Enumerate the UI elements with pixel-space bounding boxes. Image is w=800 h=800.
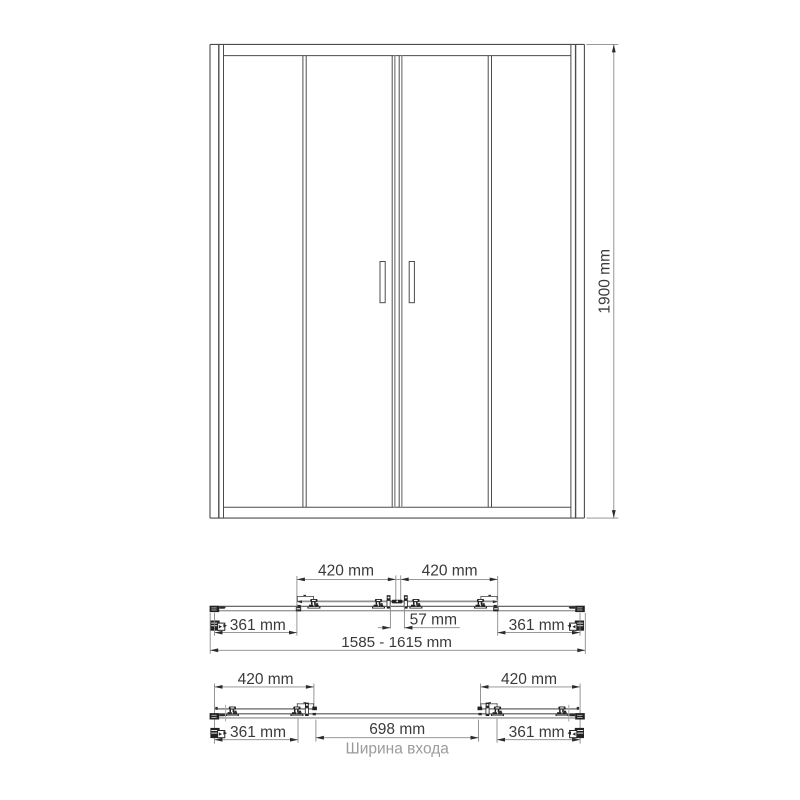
svg-text:420 mm: 420 mm	[318, 562, 374, 579]
svg-text:420 mm: 420 mm	[238, 671, 294, 688]
svg-text:57 mm: 57 mm	[410, 612, 457, 629]
svg-text:361 mm: 361 mm	[509, 617, 565, 634]
svg-text:361 mm: 361 mm	[230, 617, 286, 634]
svg-text:361 mm: 361 mm	[509, 724, 565, 741]
svg-text:1900 mm: 1900 mm	[597, 249, 614, 314]
svg-text:698 mm: 698 mm	[369, 721, 425, 738]
svg-text:420 mm: 420 mm	[501, 671, 557, 688]
svg-text:1585 - 1615 mm: 1585 - 1615 mm	[341, 634, 452, 651]
svg-text:361 mm: 361 mm	[230, 724, 286, 741]
svg-text:420 mm: 420 mm	[422, 562, 478, 579]
svg-text:Ширина входа: Ширина входа	[346, 740, 450, 757]
